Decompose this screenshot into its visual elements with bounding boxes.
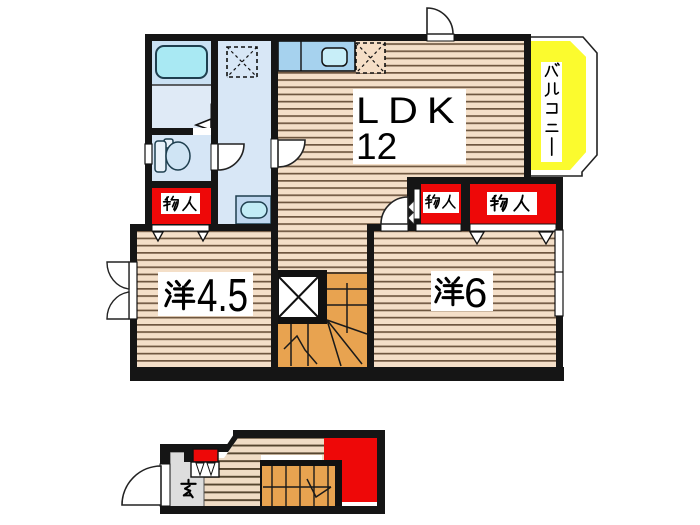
svg-text:4.5: 4.5 bbox=[197, 269, 248, 321]
svg-text:12: 12 bbox=[356, 126, 397, 167]
svg-text:6: 6 bbox=[464, 269, 487, 316]
